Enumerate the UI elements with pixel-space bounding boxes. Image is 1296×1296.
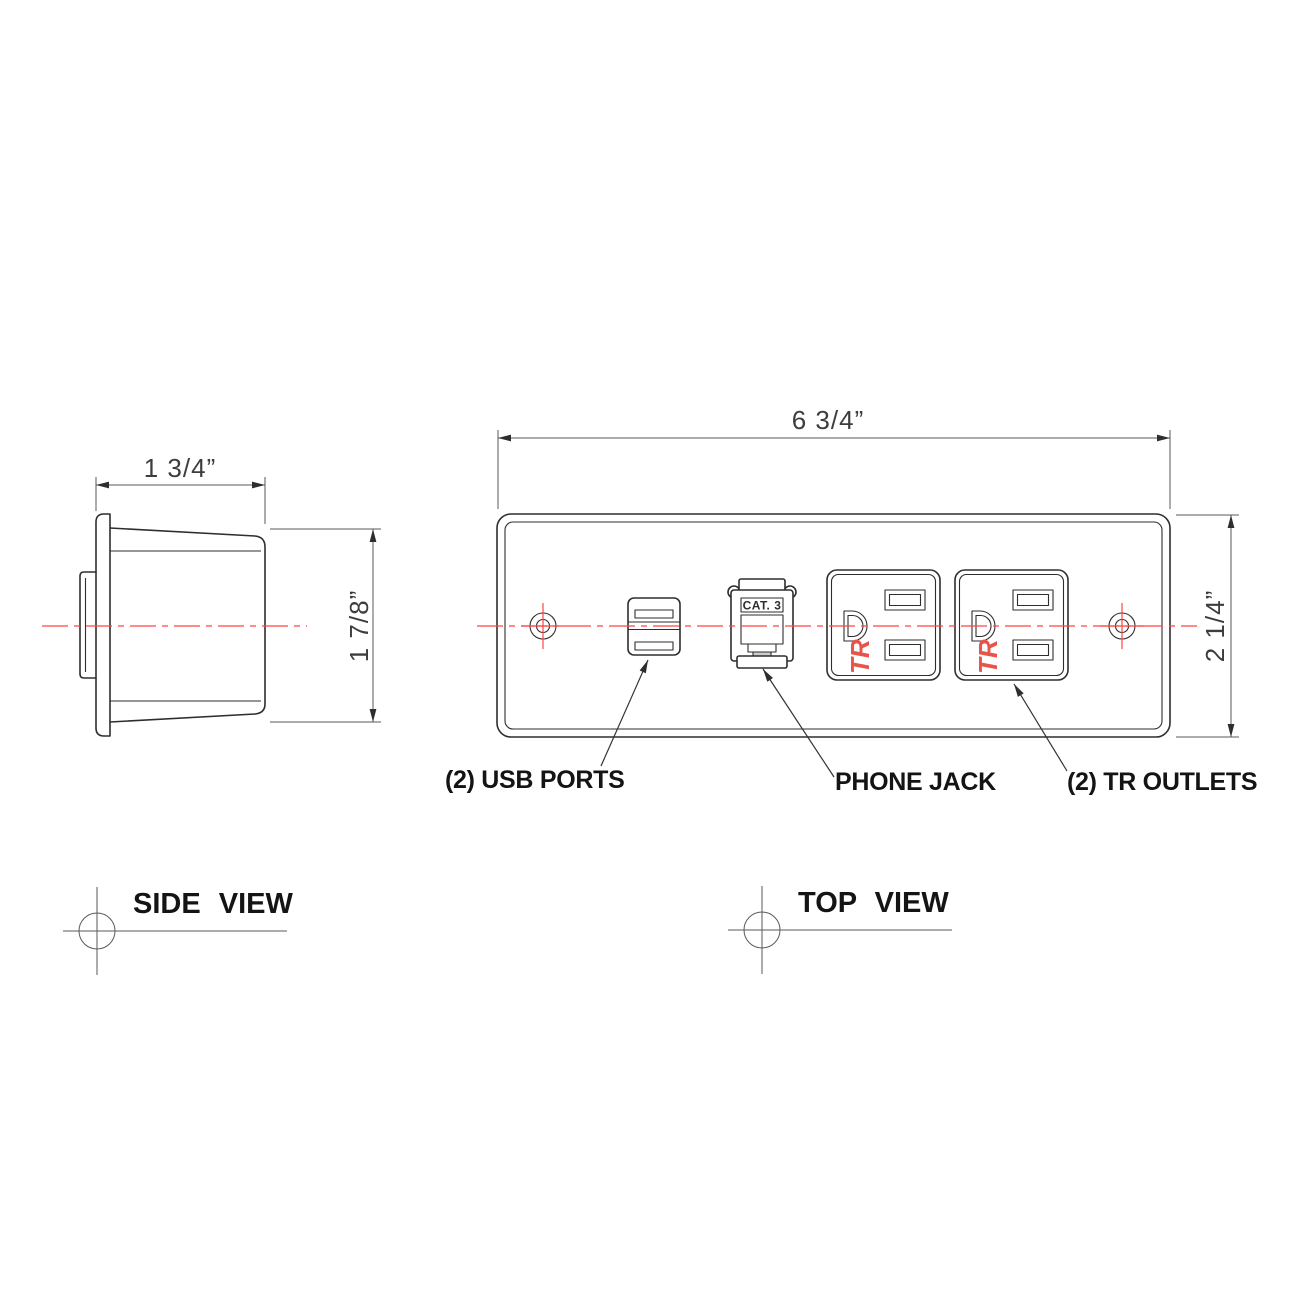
phone-jack: CAT. 3 (728, 579, 796, 668)
tr-mark: TR (973, 639, 1003, 674)
technical-drawing: 1 3/4” 1 7/8” SIDE VIEW (0, 0, 1296, 1296)
top-view: 6 3/4” CAT. 3 (445, 405, 1257, 974)
tr-outlet-2: TR (955, 570, 1068, 680)
side-view: 1 3/4” 1 7/8” SIDE VIEW (42, 453, 381, 975)
callout-usb-ports: (2) USB PORTS (445, 766, 624, 794)
blade-slot-top-inner (1018, 595, 1049, 606)
side-view-title: SIDE VIEW (133, 888, 293, 920)
drawing-sheet: 1 3/4” 1 7/8” SIDE VIEW (0, 0, 1296, 1296)
phone-jack-label: CAT. 3 (743, 599, 782, 613)
tr-outlet-1: TR (827, 570, 940, 680)
callout-tr-outlets: (2) TR OUTLETS (1067, 768, 1257, 796)
top-width-dimension: 6 3/4” (498, 405, 1170, 509)
side-width-dimension: 1 3/4” (96, 453, 265, 524)
tr-mark: TR (845, 639, 875, 674)
housing-body (110, 528, 265, 722)
outlets-leader-line (1014, 684, 1067, 771)
jack-bottom-cap (737, 656, 787, 668)
tab-outline (80, 572, 96, 678)
top-width-dim-text: 6 3/4” (792, 405, 865, 435)
blade-slot-top-outer (1013, 590, 1053, 610)
blade-slot-top-inner (890, 595, 921, 606)
housing-outline (110, 528, 265, 722)
blade-slot-bottom-outer (885, 640, 925, 660)
side-connector-tab (80, 572, 96, 678)
phone-leader-line (763, 669, 834, 777)
usb-leader-line (601, 660, 648, 766)
side-height-dim-text: 1 7/8” (344, 590, 374, 663)
top-view-caption: TOP VIEW (728, 886, 952, 974)
top-height-dim-text: 2 1/4” (1200, 590, 1230, 663)
blade-slot-bottom-inner (1018, 645, 1049, 656)
top-view-title: TOP VIEW (798, 887, 949, 919)
side-width-dim-text: 1 3/4” (144, 453, 217, 483)
blade-slot-bottom-inner (890, 645, 921, 656)
blade-slot-top-outer (885, 590, 925, 610)
side-view-caption: SIDE VIEW (63, 887, 293, 975)
callout-phone-jack: PHONE JACK (835, 768, 996, 796)
blade-slot-bottom-outer (1013, 640, 1053, 660)
mounting-flange (96, 514, 110, 736)
